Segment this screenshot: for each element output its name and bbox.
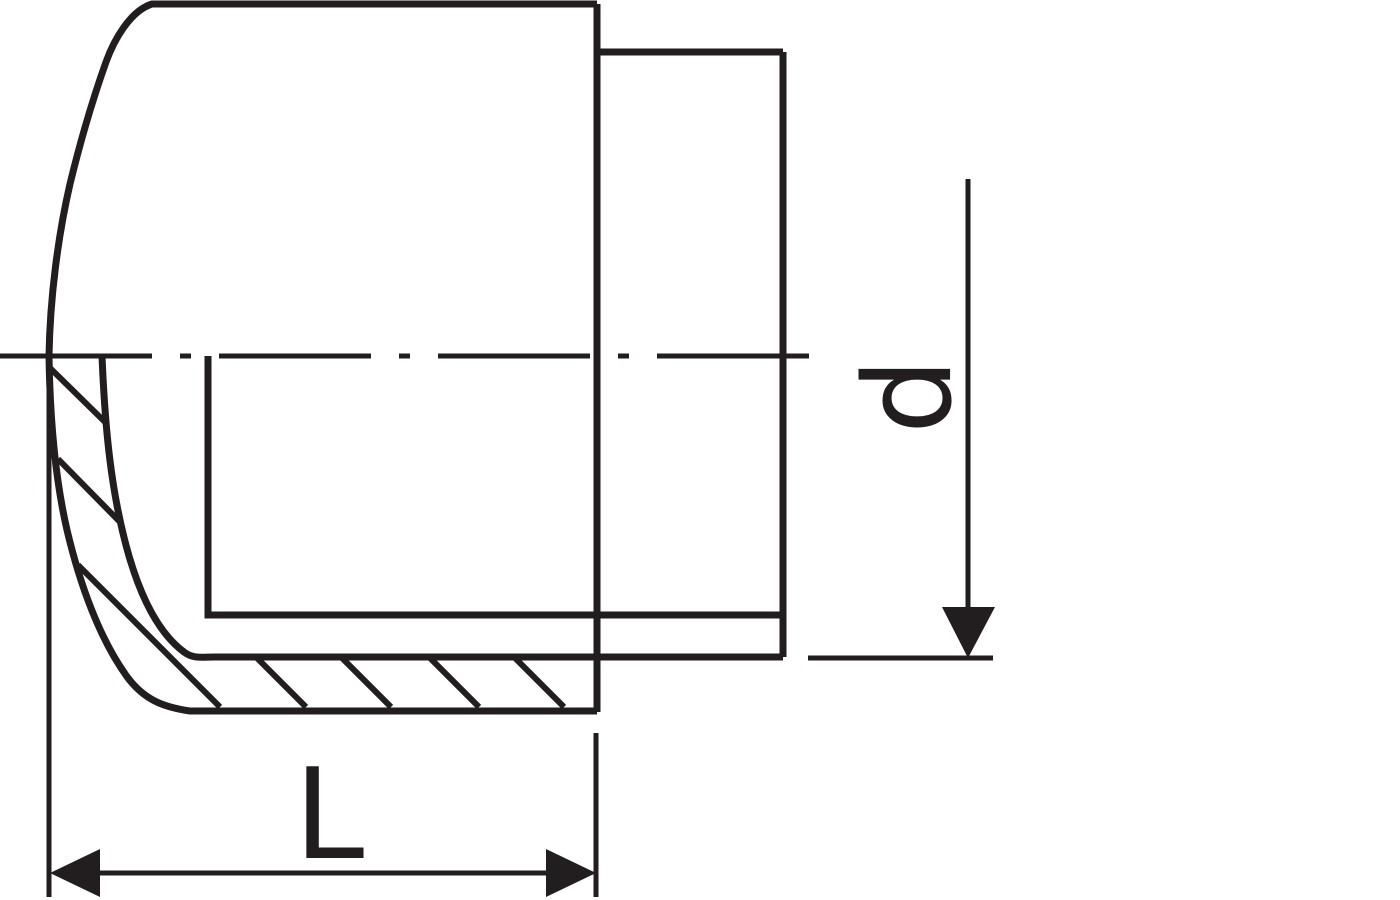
l-arrowhead-right (546, 849, 596, 897)
dimension-l-group: L (49, 358, 596, 897)
technical-drawing-pipe-end-cap: d L (0, 0, 1400, 900)
hatch-stroke (515, 658, 564, 707)
d-dimension-label: d (840, 358, 979, 434)
l-dimension-label: L (294, 741, 364, 888)
hatch-stroke (430, 658, 479, 707)
end-cap-section-drawing: d L (0, 0, 1400, 900)
d-arrowhead-down (942, 607, 995, 658)
bore-contour (208, 356, 783, 615)
l-arrowhead-left (50, 849, 100, 897)
hatch-stroke (257, 658, 306, 707)
cap-outer-top-contour (49, 4, 597, 356)
hatch-stroke (342, 658, 391, 707)
dimension-d-group: d (808, 179, 995, 658)
hatch-stroke (50, 368, 105, 422)
